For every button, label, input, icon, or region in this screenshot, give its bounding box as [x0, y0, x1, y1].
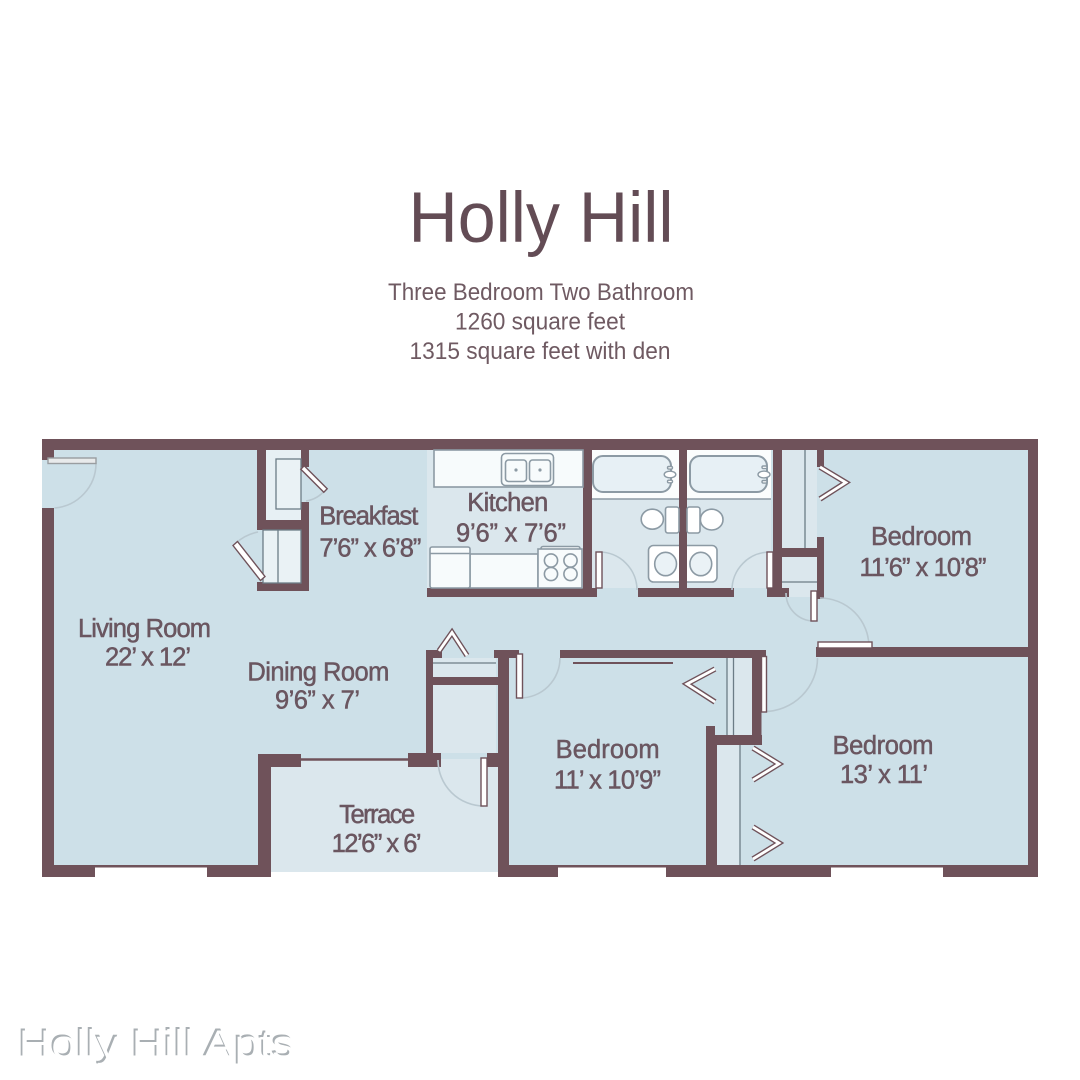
svg-text:Terrace: Terrace: [339, 801, 415, 829]
svg-text:Holly Hill Apts: Holly Hill Apts: [19, 1023, 295, 1066]
svg-text:Bedroom: Bedroom: [871, 523, 972, 551]
svg-text:Holly Hill: Holly Hill: [409, 179, 674, 258]
svg-text:Bedroom: Bedroom: [556, 736, 660, 764]
svg-text:13’ x 11’: 13’ x 11’: [840, 761, 928, 789]
svg-text:7’6” x 6’8”: 7’6” x 6’8”: [319, 534, 421, 562]
svg-text:12’6” x 6’: 12’6” x 6’: [332, 830, 422, 858]
svg-text:Kitchen: Kitchen: [467, 489, 548, 517]
svg-text:1260 square feet: 1260 square feet: [455, 309, 625, 336]
svg-text:Dining Room: Dining Room: [247, 659, 389, 687]
svg-text:22’ x 12’: 22’ x 12’: [105, 644, 191, 672]
svg-text:1315 square feet with den: 1315 square feet with den: [410, 338, 671, 365]
svg-text:11’ x 10’9”: 11’ x 10’9”: [554, 767, 661, 795]
svg-text:9’6” x 7’: 9’6” x 7’: [275, 687, 360, 715]
svg-text:Living Room: Living Room: [78, 615, 211, 643]
svg-text:Bedroom: Bedroom: [833, 732, 934, 760]
svg-text:Three Bedroom Two Bathroom: Three Bedroom Two Bathroom: [388, 279, 694, 306]
svg-text:Breakfast: Breakfast: [319, 503, 418, 531]
svg-text:11’6” x 10’8”: 11’6” x 10’8”: [860, 554, 987, 582]
svg-text:9’6” x 7’6”: 9’6” x 7’6”: [456, 520, 566, 548]
